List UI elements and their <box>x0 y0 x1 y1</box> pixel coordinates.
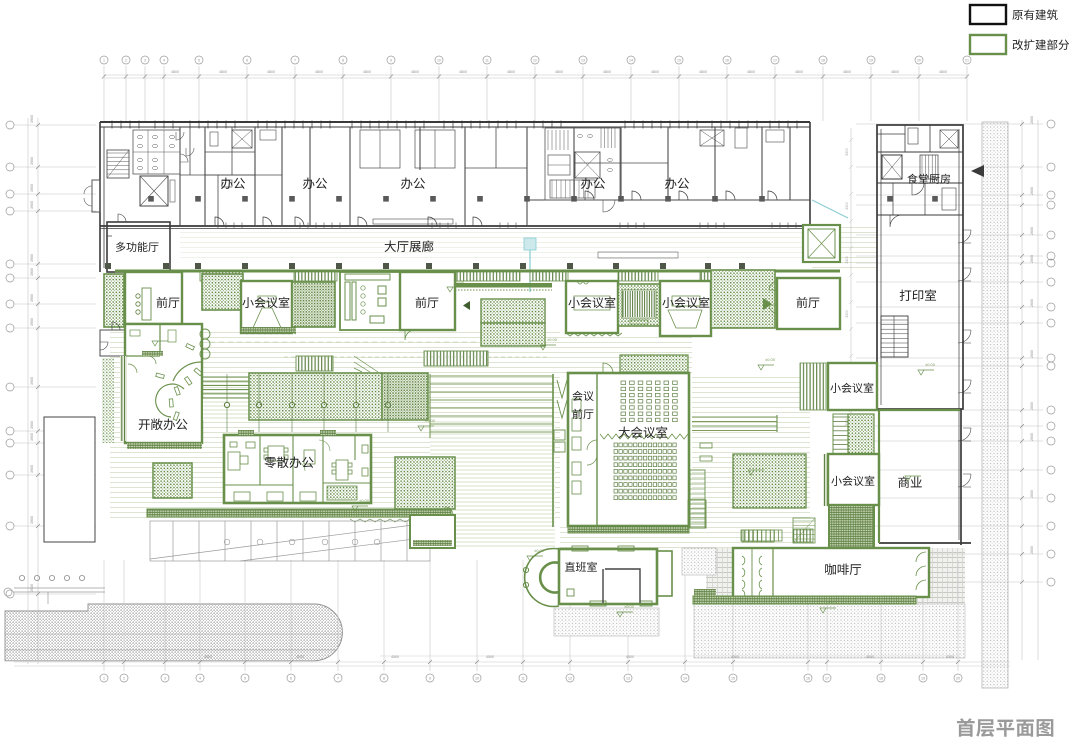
svg-text:±0.00: ±0.00 <box>827 600 838 605</box>
svg-text:4: 4 <box>163 58 165 62</box>
svg-text:3900: 3900 <box>30 377 34 385</box>
svg-text:12: 12 <box>568 676 572 680</box>
svg-text:4800: 4800 <box>459 70 467 74</box>
svg-text:4800: 4800 <box>651 70 659 74</box>
svg-text:2600: 2600 <box>1030 299 1034 307</box>
svg-text:4800: 4800 <box>363 70 371 74</box>
svg-text:3300: 3300 <box>845 256 849 264</box>
svg-text:4800: 4800 <box>603 70 611 74</box>
svg-text:3900: 3900 <box>30 465 34 473</box>
svg-text:5: 5 <box>198 58 200 62</box>
svg-text:2600: 2600 <box>1030 187 1034 195</box>
svg-text:3900: 3900 <box>30 421 34 429</box>
svg-text:9: 9 <box>390 58 392 62</box>
svg-text:2600: 2600 <box>1030 402 1034 410</box>
svg-text:6: 6 <box>290 676 292 680</box>
svg-text:4800: 4800 <box>939 70 947 74</box>
svg-text:±0.00: ±0.00 <box>359 498 370 503</box>
svg-text:1: 1 <box>103 676 105 680</box>
svg-text:4800: 4800 <box>555 70 563 74</box>
svg-text:17: 17 <box>825 676 829 680</box>
svg-text:4800: 4800 <box>411 70 419 74</box>
svg-text:4800: 4800 <box>699 70 707 74</box>
svg-text:6: 6 <box>246 58 248 62</box>
svg-text:2600: 2600 <box>1030 433 1034 441</box>
svg-text:3900: 3900 <box>30 254 34 262</box>
svg-text:20: 20 <box>917 58 921 62</box>
svg-text:11: 11 <box>485 58 489 62</box>
svg-text:3900: 3900 <box>30 318 34 326</box>
svg-text:7: 7 <box>294 58 296 62</box>
svg-text:16: 16 <box>806 676 810 680</box>
svg-text:±0.00: ±0.00 <box>534 548 545 553</box>
svg-text:18: 18 <box>821 58 825 62</box>
svg-text:±0.00: ±0.00 <box>454 279 465 284</box>
svg-text:3900: 3900 <box>30 294 34 302</box>
svg-text:4500: 4500 <box>626 655 634 659</box>
svg-text:1: 1 <box>103 58 105 62</box>
svg-text:8: 8 <box>383 676 385 680</box>
svg-text:3: 3 <box>144 58 146 62</box>
svg-text:3: 3 <box>164 676 166 680</box>
svg-text:4800: 4800 <box>843 70 851 74</box>
svg-text:3900: 3900 <box>30 516 34 524</box>
svg-text:4500: 4500 <box>731 655 739 659</box>
svg-text:±0.00: ±0.00 <box>425 418 436 423</box>
svg-text:3900: 3900 <box>30 157 34 165</box>
svg-text:2: 2 <box>125 58 127 62</box>
svg-text:4800: 4800 <box>507 70 515 74</box>
svg-text:19: 19 <box>921 676 925 680</box>
svg-text:15: 15 <box>731 676 735 680</box>
svg-text:9: 9 <box>429 676 431 680</box>
svg-text:10: 10 <box>475 676 479 680</box>
svg-text:3300: 3300 <box>845 148 849 156</box>
svg-text:3300: 3300 <box>845 310 849 318</box>
svg-text:±0.00: ±0.00 <box>765 357 776 362</box>
svg-text:±0.00: ±0.00 <box>624 604 635 609</box>
svg-text:2: 2 <box>123 676 125 680</box>
svg-text:12: 12 <box>533 58 537 62</box>
svg-text:21: 21 <box>965 58 969 62</box>
svg-text:2600: 2600 <box>1030 350 1034 358</box>
svg-text:4: 4 <box>199 676 201 680</box>
svg-text:13: 13 <box>626 676 630 680</box>
svg-text:10: 10 <box>437 58 441 62</box>
svg-text:3900: 3900 <box>30 115 34 123</box>
svg-text:15: 15 <box>677 58 681 62</box>
svg-text:14: 14 <box>683 676 687 680</box>
svg-text:3900: 3900 <box>30 433 34 441</box>
svg-text:4500: 4500 <box>391 655 399 659</box>
svg-text:17: 17 <box>773 58 777 62</box>
svg-text:4800: 4800 <box>171 70 179 74</box>
svg-text:4800: 4800 <box>315 70 323 74</box>
svg-text:11: 11 <box>521 676 525 680</box>
svg-text:4800: 4800 <box>891 70 899 74</box>
svg-text:4500: 4500 <box>204 655 212 659</box>
svg-text:18: 18 <box>879 676 883 680</box>
svg-text:4800: 4800 <box>219 70 227 74</box>
svg-text:±0.00: ±0.00 <box>925 362 936 367</box>
svg-text:4800: 4800 <box>747 70 755 74</box>
svg-text:13: 13 <box>581 58 585 62</box>
svg-text:4500: 4500 <box>946 655 954 659</box>
svg-text:2600: 2600 <box>1030 490 1034 498</box>
svg-text:20: 20 <box>956 676 960 680</box>
svg-text:2600: 2600 <box>1030 255 1034 263</box>
svg-text:7: 7 <box>337 676 339 680</box>
svg-text:4500: 4500 <box>866 655 874 659</box>
svg-text:2600: 2600 <box>1030 546 1034 554</box>
svg-text:4800: 4800 <box>267 70 275 74</box>
svg-text:2600: 2600 <box>1030 227 1034 235</box>
svg-text:4500: 4500 <box>296 655 304 659</box>
svg-text:3900: 3900 <box>30 268 34 276</box>
svg-text:3900: 3900 <box>30 201 34 209</box>
svg-text:8: 8 <box>342 58 344 62</box>
svg-text:14: 14 <box>629 58 633 62</box>
svg-text:19: 19 <box>869 58 873 62</box>
svg-text:2600: 2600 <box>1030 116 1034 124</box>
svg-text:5: 5 <box>244 676 246 680</box>
svg-text:3300: 3300 <box>845 202 849 210</box>
svg-text:16: 16 <box>725 58 729 62</box>
svg-text:4800: 4800 <box>795 70 803 74</box>
svg-text:±0.00: ±0.00 <box>547 337 558 342</box>
svg-text:3900: 3900 <box>30 184 34 192</box>
svg-text:4500: 4500 <box>486 655 494 659</box>
